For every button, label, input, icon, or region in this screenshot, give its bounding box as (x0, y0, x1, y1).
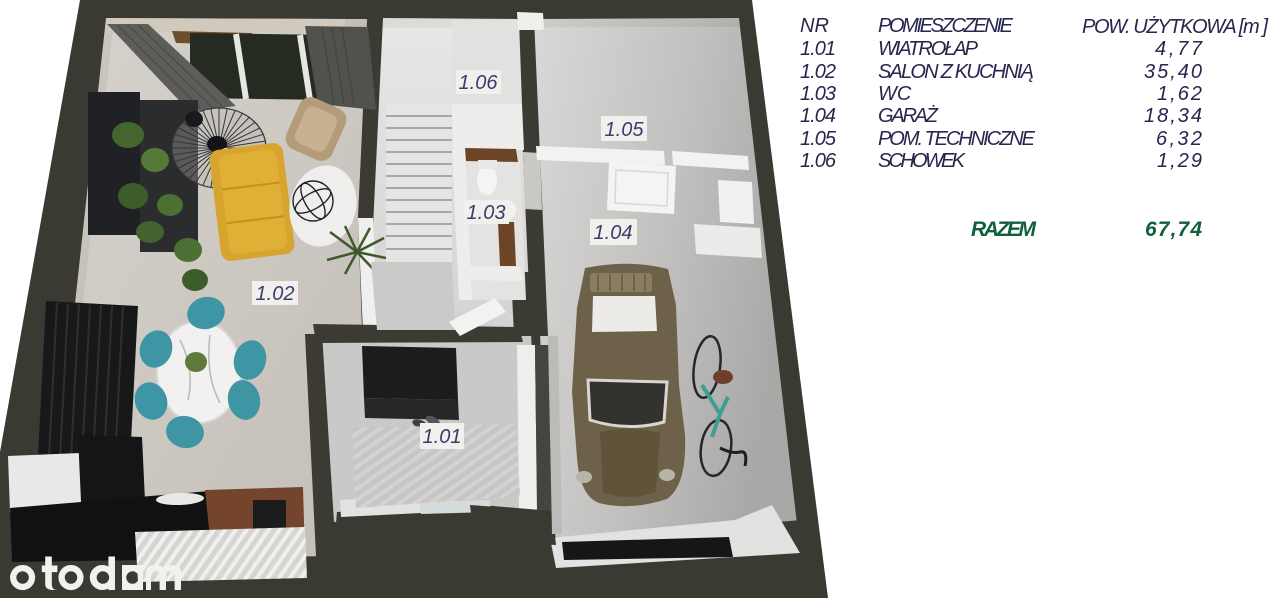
svg-text:1.02: 1.02 (800, 61, 836, 83)
svg-text:67,74: 67,74 (1145, 218, 1202, 241)
svg-text:RAZEM: RAZEM (971, 218, 1037, 241)
svg-text:POMIESZCZENIE: POMIESZCZENIE (878, 15, 1014, 37)
svg-text:GARAŻ: GARAŻ (878, 105, 939, 127)
svg-text:4,77: 4,77 (1155, 38, 1203, 60)
svg-text:POM. TECHNICZNE: POM. TECHNICZNE (878, 128, 1036, 150)
svg-text:35,40: 35,40 (1144, 61, 1202, 83)
svg-text:1.06: 1.06 (800, 150, 837, 172)
svg-text:1.01: 1.01 (423, 426, 462, 448)
svg-text:6,32: 6,32 (1156, 128, 1202, 150)
svg-text:1,29: 1,29 (1157, 150, 1202, 172)
svg-text:1.05: 1.05 (800, 128, 837, 150)
svg-text:1.04: 1.04 (594, 222, 633, 244)
svg-text:1.03: 1.03 (467, 202, 506, 224)
svg-text:1.01: 1.01 (800, 38, 836, 60)
svg-text:1.06: 1.06 (459, 72, 499, 94)
svg-text:18,34: 18,34 (1144, 105, 1202, 127)
svg-text:WC: WC (878, 83, 912, 105)
svg-text:1,62: 1,62 (1157, 83, 1202, 105)
svg-text:1.05: 1.05 (605, 119, 645, 141)
svg-text:SALON Z KUCHNIĄ: SALON Z KUCHNIĄ (878, 61, 1034, 83)
svg-text:1.02: 1.02 (256, 283, 295, 305)
svg-text:WIATROŁAP: WIATROŁAP (878, 38, 979, 60)
svg-text:NR: NR (800, 15, 829, 37)
svg-text:SCHOWEK: SCHOWEK (878, 150, 967, 172)
svg-text:1.03: 1.03 (800, 83, 836, 105)
svg-text:1.04: 1.04 (800, 105, 836, 127)
svg-text:POW. UŻYTKOWA [m ]: POW. UŻYTKOWA [m ] (1082, 16, 1268, 38)
